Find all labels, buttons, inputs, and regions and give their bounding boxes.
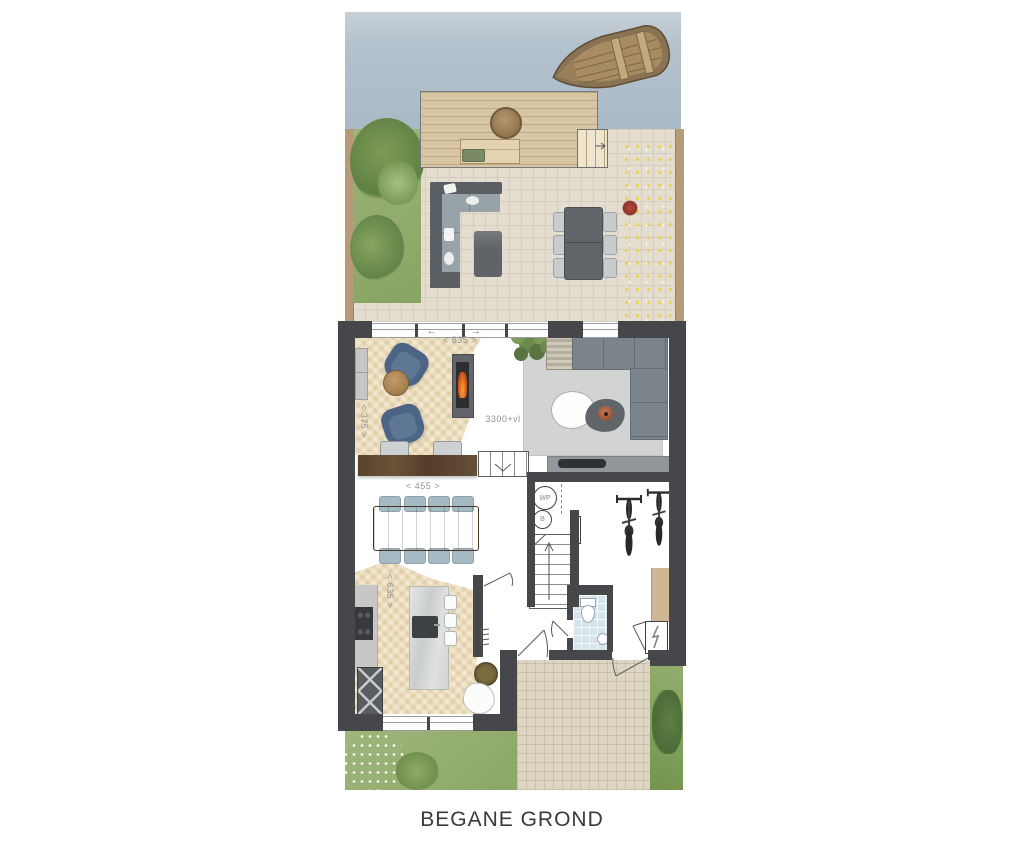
floorplan-canvas: WP B: [0, 0, 1024, 853]
dim-living-width: < 835 >: [430, 335, 490, 345]
page-title: BEGANE GROND: [362, 808, 662, 832]
dim-kitchen-depth: < 635 >: [385, 574, 395, 608]
annotation-overlay: [0, 0, 1024, 853]
dim-living-depth: < 375 >: [359, 404, 369, 438]
ceiling-height: 3300+vl: [478, 414, 528, 424]
chevron-down-icon: [495, 464, 511, 471]
dim-dining-width: < 455 >: [393, 481, 453, 491]
